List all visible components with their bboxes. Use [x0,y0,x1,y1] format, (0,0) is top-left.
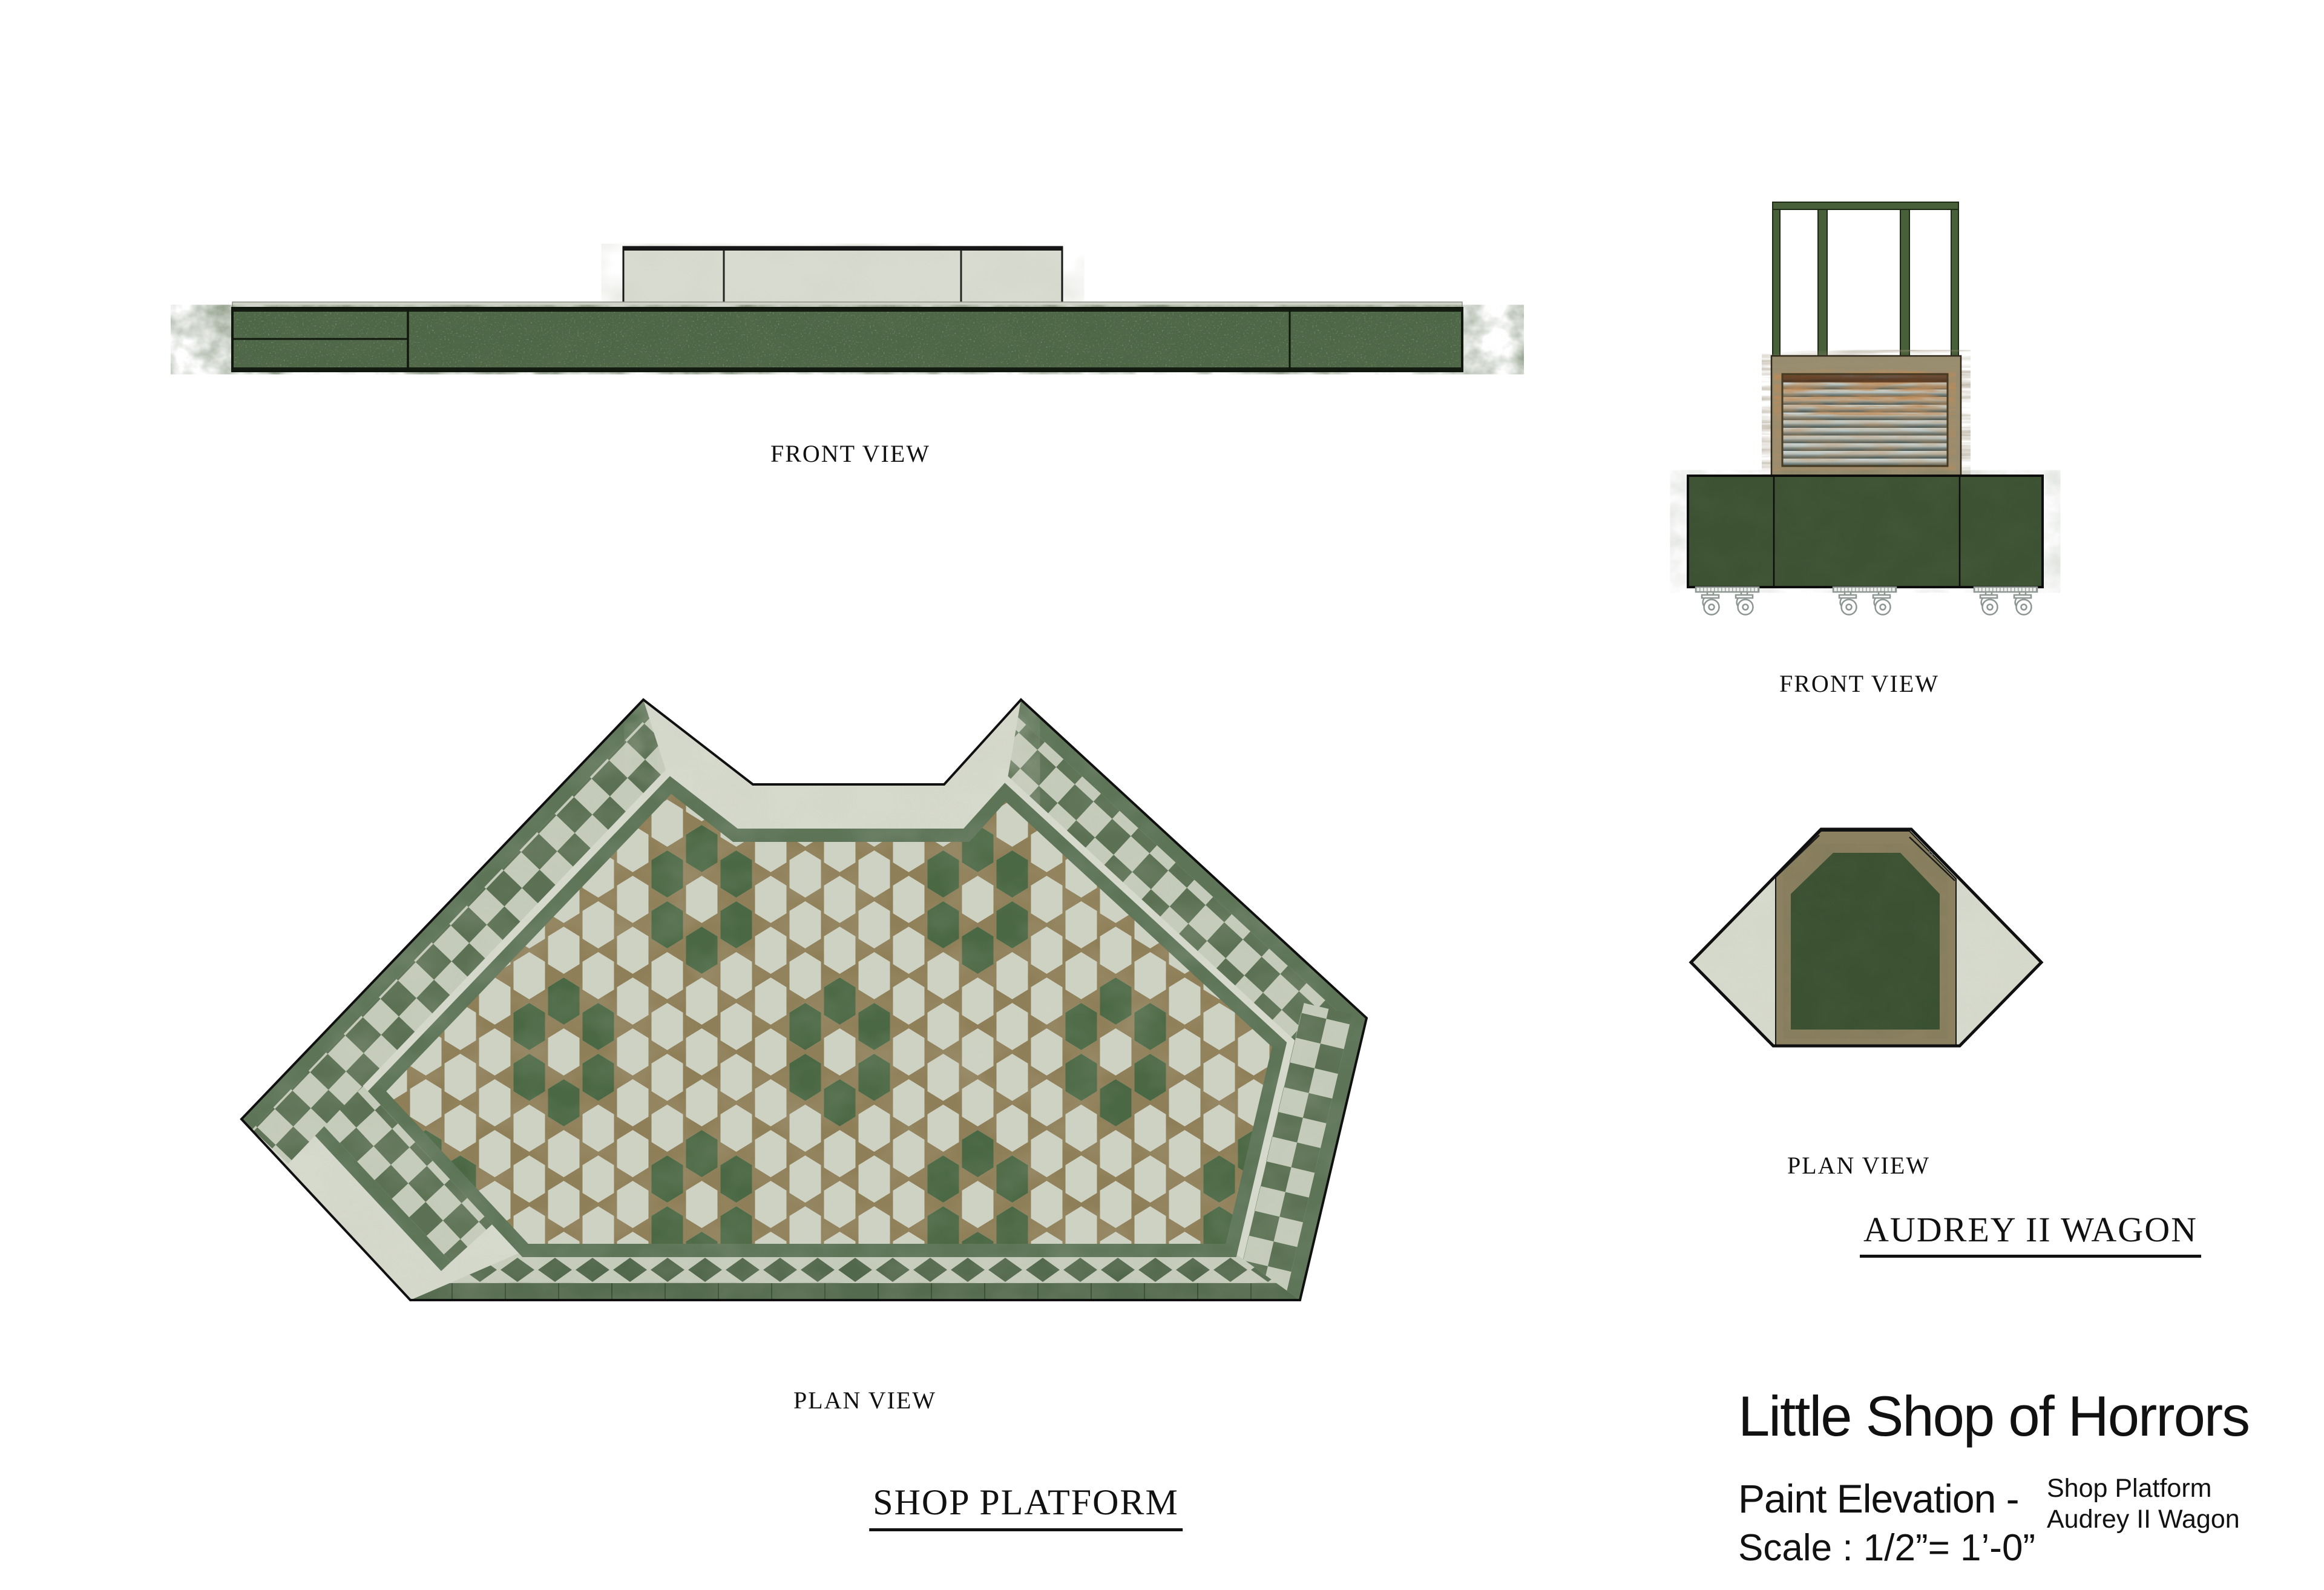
platform-title: SHOP PLATFORM [869,1482,1183,1531]
sheet-subject: Shop Platform Audrey II Wagon [2047,1473,2240,1534]
sheet-scale: Scale : 1/2”= 1’-0” [1738,1526,2035,1569]
wagon-title: AUDREY II WAGON [1860,1209,2201,1258]
hinge-mark-left [1795,845,1800,850]
wagon-casters [1696,587,2037,615]
wagon-front-view-drawing [1688,202,2043,615]
wagon-front-view-label: FRONT VIEW [1779,669,1939,698]
drawing-canvas [0,0,2324,1590]
wagon-plan-view-drawing [1689,826,2046,1050]
platform-step-block [623,247,1062,308]
platform-front-view-drawing [232,247,1462,371]
show-title: Little Shop of Horrors [1738,1384,2249,1449]
sheet-type: Paint Elevation - [1738,1476,2019,1522]
platform-plan-view-label: PLAN VIEW [793,1386,936,1414]
wagon-base [1688,476,2043,587]
sheet-subject-line2: Audrey II Wagon [2047,1504,2240,1535]
platform-slab [232,308,1462,371]
corrugated-metal [1782,374,1948,466]
wagon-wood-panel [1771,356,1961,476]
wagon-frame [1773,202,1958,356]
paint-elevation-sheet: { "sheet": { "background": "#ffffff" }, … [0,0,2324,1590]
platform-plan-view-drawing [236,696,1374,1307]
platform-front-view-label: FRONT VIEW [770,439,930,468]
sheet-subject-line1: Shop Platform [2047,1473,2240,1504]
wagon-plan-view-label: PLAN VIEW [1787,1151,1930,1180]
